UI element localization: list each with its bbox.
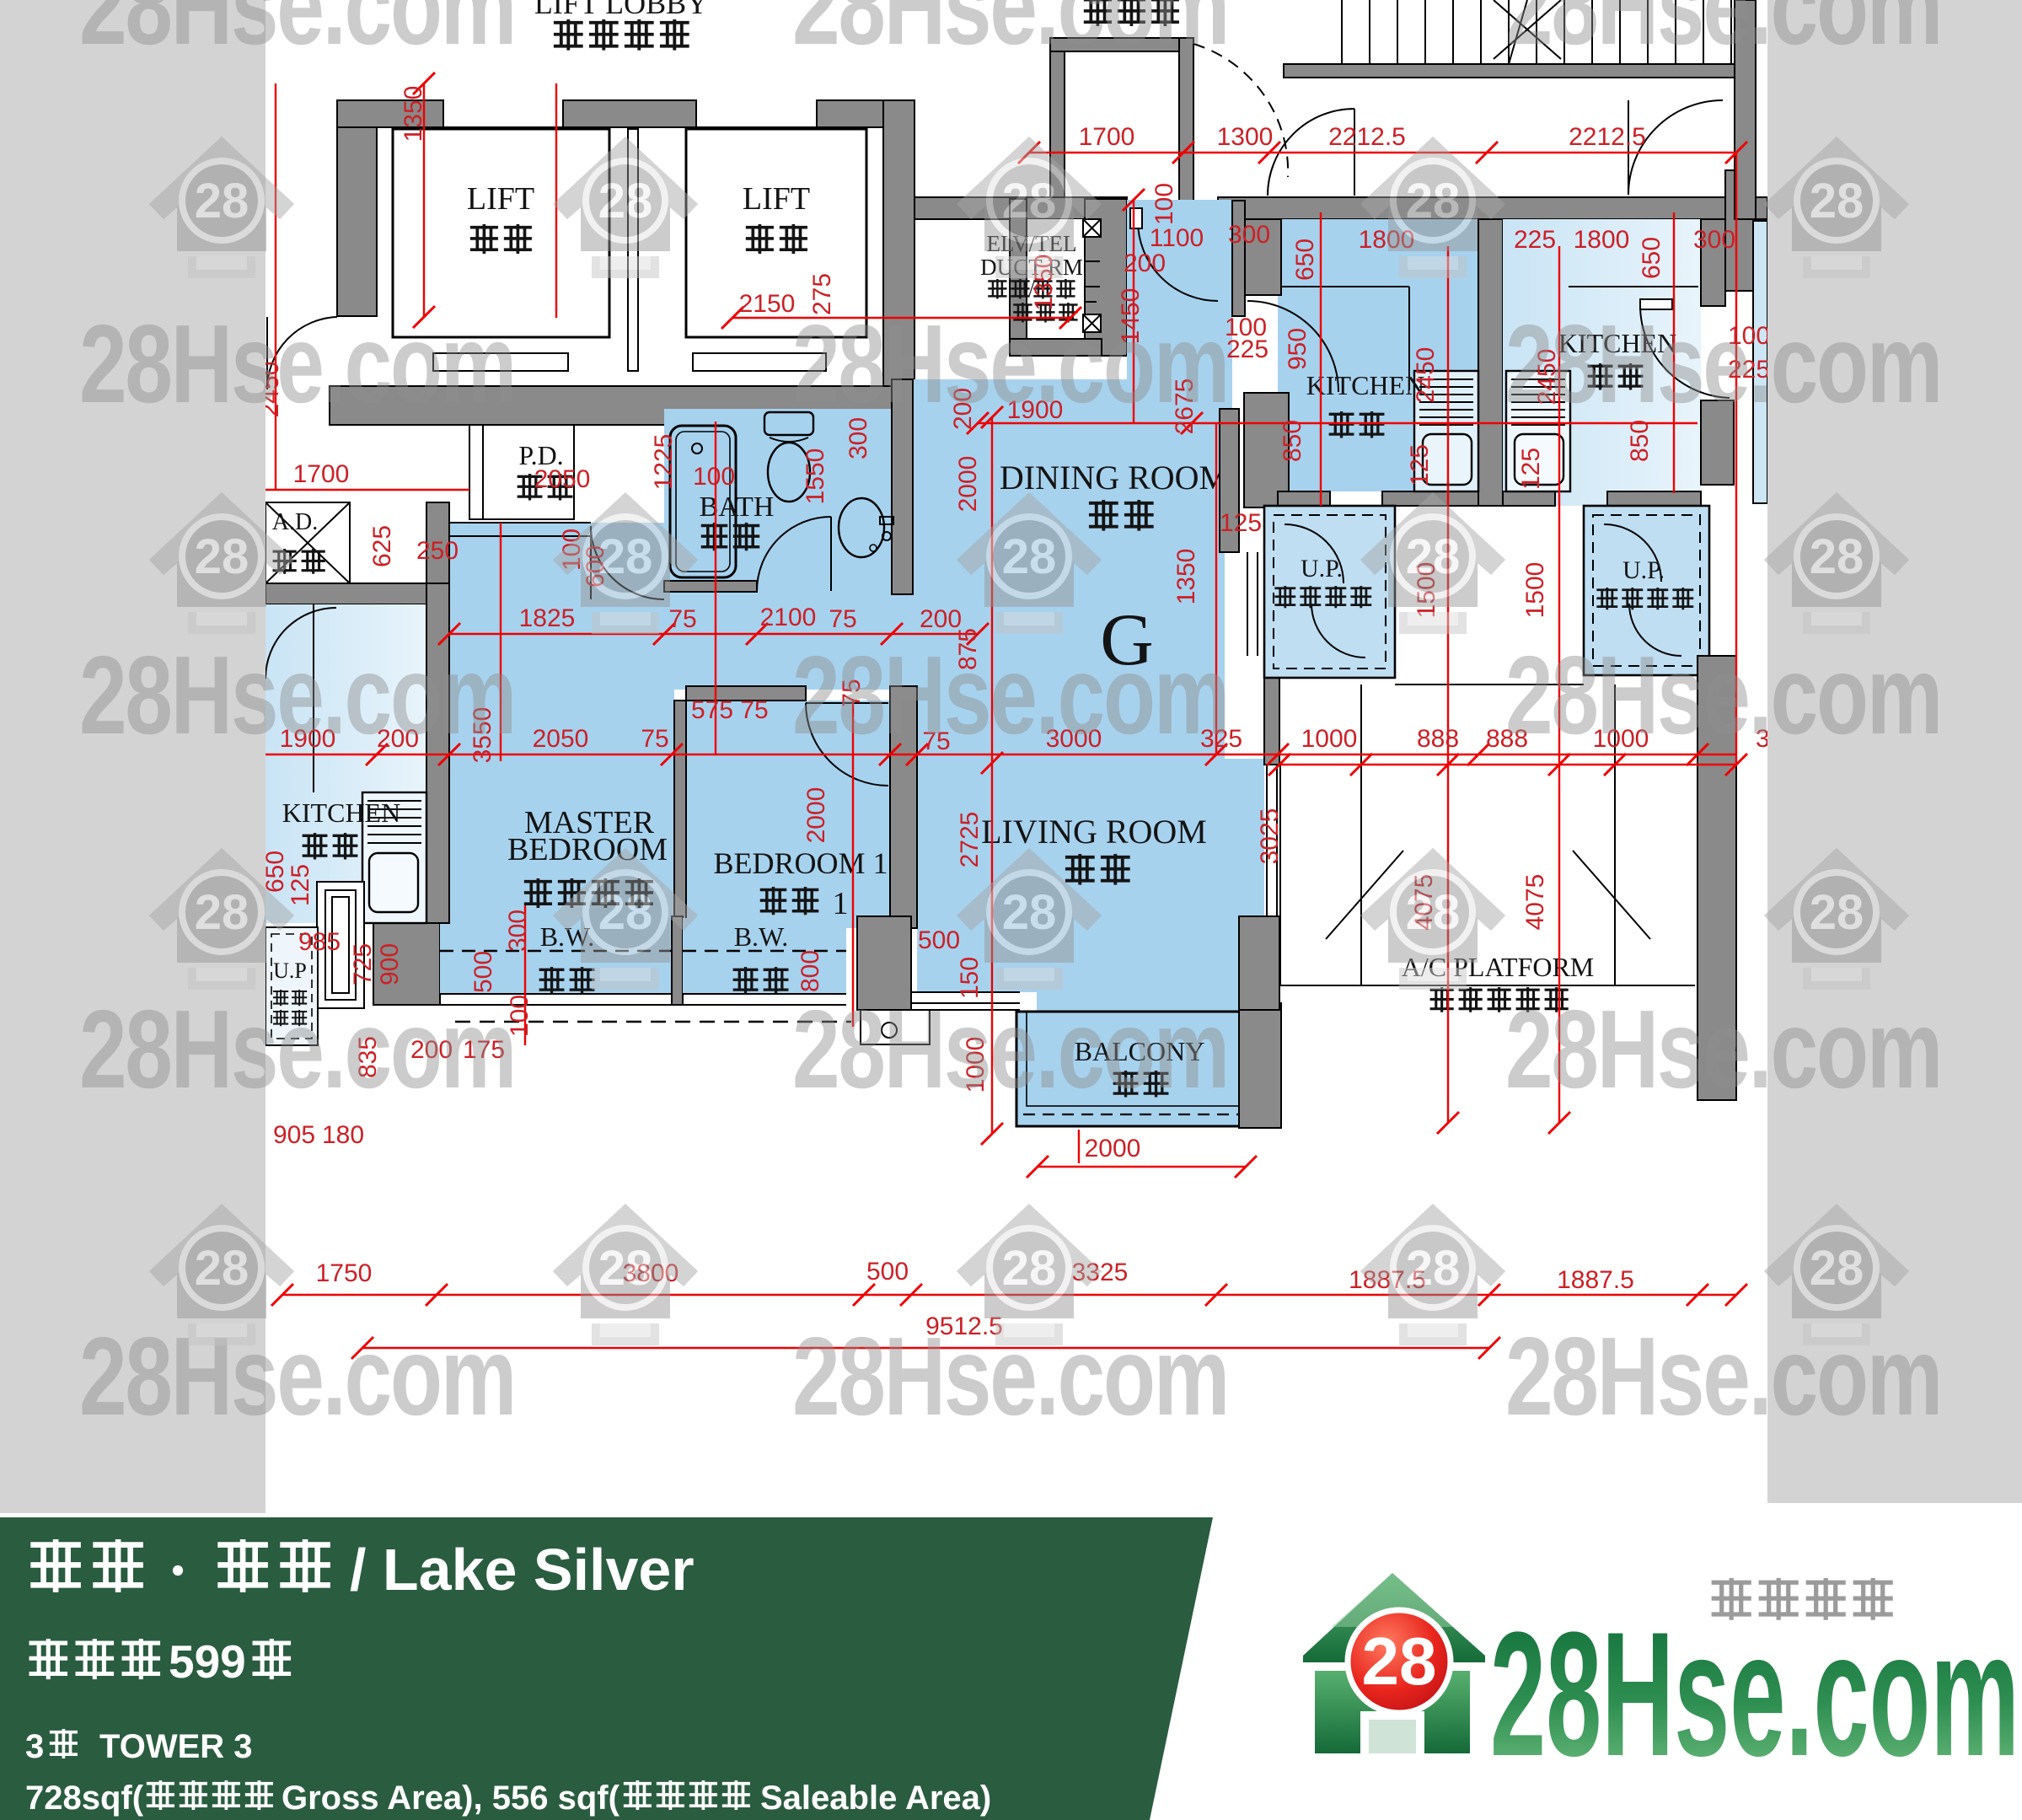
svg-text:1100: 1100 (1150, 224, 1204, 252)
svg-text:2725: 2725 (956, 812, 984, 868)
svg-text:75: 75 (641, 725, 668, 753)
svg-text:300: 300 (504, 910, 532, 952)
svg-text:28Hse.com: 28Hse.com (79, 1314, 515, 1438)
svg-text:BEDROOM 1: BEDROOM 1 (713, 846, 888, 880)
svg-text:100: 100 (693, 463, 735, 491)
svg-text:650: 650 (1638, 237, 1665, 279)
svg-text:125: 125 (1220, 509, 1262, 537)
svg-text:2050: 2050 (533, 725, 589, 753)
svg-text:28Hse.com: 28Hse.com (79, 0, 515, 67)
svg-text:180: 180 (322, 1121, 364, 1149)
svg-text:650: 650 (1291, 239, 1319, 281)
svg-text:1550: 1550 (802, 448, 829, 505)
svg-text:125: 125 (1406, 444, 1434, 486)
svg-text:28Hse.com: 28Hse.com (1490, 1595, 2019, 1793)
svg-text:28Hse.com: 28Hse.com (79, 987, 515, 1111)
svg-text:4075: 4075 (1521, 874, 1549, 931)
svg-text:DINING ROOM: DINING ROOM (1000, 459, 1229, 497)
svg-text:BATH: BATH (700, 491, 775, 523)
svg-text:U.P: U.P (273, 958, 307, 983)
svg-text:1350: 1350 (400, 86, 427, 142)
svg-text:1300: 1300 (1217, 123, 1274, 151)
svg-text:LIFT: LIFT (467, 181, 534, 217)
svg-text:1225: 1225 (650, 434, 678, 491)
svg-text:728sqf(: 728sqf( (25, 1780, 144, 1817)
svg-text:28Hse.com: 28Hse.com (792, 302, 1228, 426)
svg-text:B.W.: B.W. (734, 921, 789, 952)
svg-text:A.D.: A.D. (272, 509, 318, 535)
svg-text:2212.5: 2212.5 (1328, 123, 1406, 151)
svg-text:300: 300 (1693, 226, 1735, 254)
svg-text:75: 75 (668, 605, 696, 633)
svg-text:KITCHEN: KITCHEN (282, 797, 400, 828)
svg-text:2000: 2000 (954, 456, 982, 513)
svg-text:28Hse.com: 28Hse.com (1505, 0, 1941, 67)
svg-text:2212.5: 2212.5 (1569, 123, 1646, 151)
svg-text:28Hse.com: 28Hse.com (79, 633, 515, 757)
svg-text:28Hse.com: 28Hse.com (792, 0, 1228, 67)
svg-text:2150: 2150 (739, 290, 796, 318)
svg-text:28Hse.com: 28Hse.com (1505, 633, 1941, 757)
svg-text:28Hse.com: 28Hse.com (792, 633, 1228, 757)
svg-text:1000: 1000 (1301, 725, 1358, 753)
svg-text:KITCHEN: KITCHEN (1306, 370, 1424, 400)
svg-text:2000: 2000 (802, 787, 830, 844)
svg-text:LIFT: LIFT (743, 181, 810, 217)
svg-text:1350: 1350 (1172, 549, 1200, 605)
svg-text:625: 625 (368, 525, 396, 567)
svg-text:BEDROOM: BEDROOM (507, 832, 668, 867)
svg-text:1700: 1700 (1079, 123, 1135, 151)
svg-text:28: 28 (1362, 1624, 1437, 1699)
svg-text:850: 850 (1626, 420, 1654, 462)
svg-text:LIFT LOBBY: LIFT LOBBY (534, 0, 708, 20)
svg-text:500: 500 (866, 1258, 909, 1286)
svg-text:575: 575 (691, 696, 733, 724)
svg-text:28Hse.com: 28Hse.com (792, 987, 1228, 1111)
svg-text:125: 125 (1517, 448, 1545, 490)
svg-text:2100: 2100 (760, 604, 817, 631)
svg-text:800: 800 (796, 950, 824, 992)
svg-text:28Hse.com: 28Hse.com (1505, 1314, 1941, 1438)
svg-text:950: 950 (1284, 328, 1311, 370)
svg-text:500: 500 (918, 926, 960, 954)
svg-text:100: 100 (1150, 183, 1178, 225)
svg-text:75: 75 (740, 696, 768, 724)
svg-text:985: 985 (298, 928, 341, 956)
svg-text:U.P.: U.P. (1301, 555, 1343, 583)
svg-text:1887.5: 1887.5 (1557, 1266, 1634, 1294)
svg-text:2000: 2000 (1085, 1135, 1141, 1162)
svg-text:200: 200 (1124, 250, 1166, 277)
svg-text:225: 225 (1226, 336, 1268, 363)
svg-text:Gross Area), 556 sqf(: Gross Area), 556 sqf( (282, 1780, 620, 1817)
svg-text:28Hse.com: 28Hse.com (1505, 987, 1941, 1111)
svg-text:3: 3 (25, 1728, 44, 1765)
svg-text:1800: 1800 (1574, 226, 1630, 254)
svg-text:300: 300 (1228, 221, 1270, 249)
svg-text:1750: 1750 (316, 1259, 373, 1287)
svg-text:2050: 2050 (534, 465, 591, 493)
svg-text:900: 900 (376, 943, 404, 985)
svg-text:250: 250 (416, 537, 459, 565)
svg-text:75: 75 (829, 605, 856, 633)
svg-text:225: 225 (1514, 226, 1556, 254)
svg-text:28Hse.com: 28Hse.com (1505, 302, 1941, 426)
svg-text:1825: 1825 (519, 604, 576, 632)
svg-text:1700: 1700 (293, 460, 350, 488)
svg-text:725: 725 (349, 943, 377, 985)
svg-text:850: 850 (1279, 420, 1306, 462)
svg-text:LIVING ROOM: LIVING ROOM (981, 813, 1207, 851)
svg-text:599: 599 (169, 1635, 246, 1688)
svg-text:28Hse.com: 28Hse.com (79, 302, 515, 426)
svg-text:Saleable Area): Saleable Area) (760, 1780, 991, 1817)
svg-text:1500: 1500 (1521, 562, 1549, 619)
svg-text:3025: 3025 (1256, 808, 1284, 865)
svg-text:/ Lake Silver: / Lake Silver (350, 1537, 695, 1603)
svg-text:2450: 2450 (1412, 347, 1440, 404)
svg-text:TOWER 3: TOWER 3 (99, 1728, 253, 1765)
svg-text:888: 888 (1417, 725, 1459, 753)
svg-text:1: 1 (833, 886, 849, 921)
svg-text:905: 905 (273, 1121, 315, 1149)
svg-text:125: 125 (287, 864, 314, 906)
svg-text:U.P.: U.P. (1622, 556, 1665, 584)
